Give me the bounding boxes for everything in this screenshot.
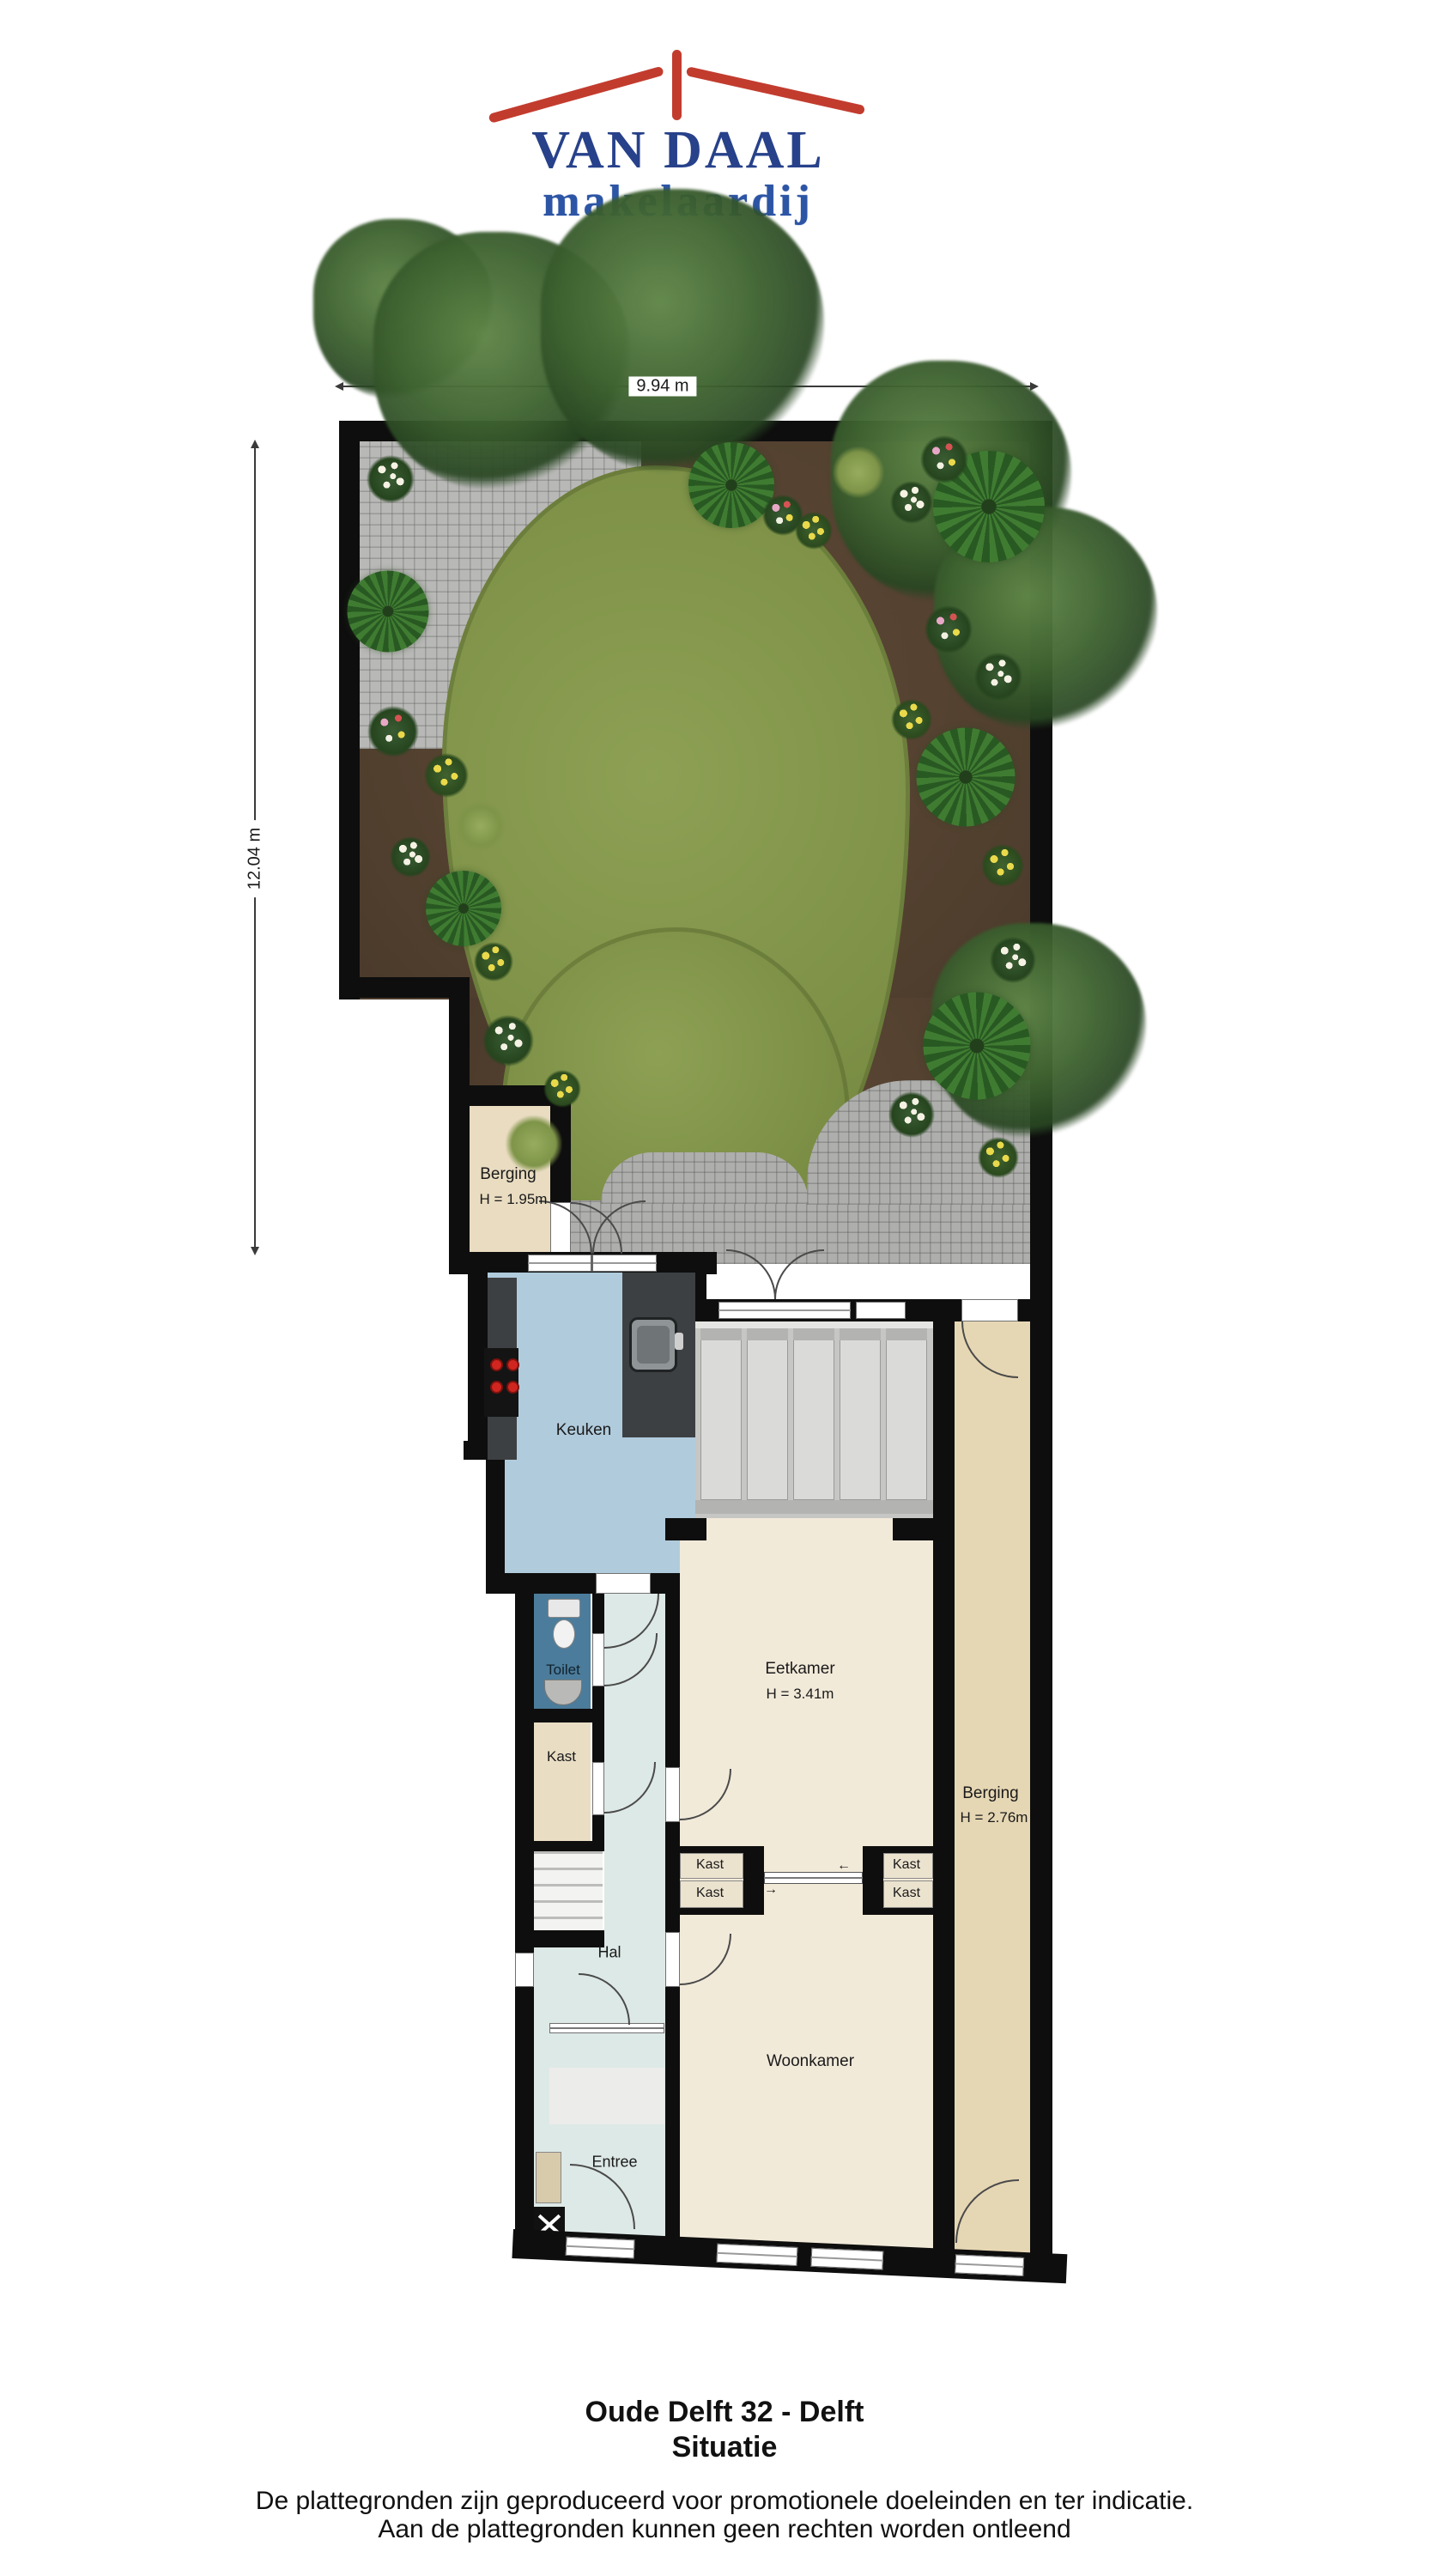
- wall-kast-stairs: [515, 1841, 604, 1851]
- conservatory-window-2: [856, 1302, 906, 1319]
- main-left-wall-c: [665, 1987, 680, 2258]
- conservatory-cap-1: [700, 1328, 742, 1340]
- room-label-eetkamer: Eetkamer: [765, 1660, 834, 1679]
- garden-wall-left-mid: [449, 977, 470, 1264]
- disclaimer-line-1: De plattegronden zijn geproduceerd voor …: [0, 2487, 1449, 2516]
- flower-shrub: [990, 937, 1036, 983]
- stair-tread-4: [534, 1900, 603, 1903]
- kast-band-top-right: [883, 1846, 933, 1853]
- conservatory-cap-3: [793, 1328, 834, 1340]
- berging-right-wall-top-a: [933, 1299, 961, 1321]
- flower-shrub: [888, 1091, 935, 1138]
- conservatory-top-frame: [695, 1321, 933, 1328]
- kast-post-right: [863, 1846, 883, 1915]
- flower-shrub: [474, 942, 513, 981]
- flower-shrub: [367, 455, 415, 503]
- page-title: Oude Delft 32 - Delft: [0, 2396, 1449, 2429]
- tree-bush: [541, 189, 824, 472]
- woonkamer-door: [665, 1932, 680, 1987]
- berging-right-door-top: [961, 1299, 1018, 1321]
- conservatory-cap-2: [747, 1328, 788, 1340]
- room-label-keuken: Keuken: [556, 1421, 611, 1440]
- flower-shrub: [981, 844, 1024, 887]
- stair-tread-5: [534, 1917, 603, 1919]
- flower-shrub: [978, 1137, 1019, 1178]
- room-label-berging-right: Berging: [962, 1784, 1019, 1803]
- conservatory-panel-4: [840, 1328, 881, 1500]
- sliding-door-arrow-right-icon: →: [764, 1882, 778, 1898]
- conservatory-cap-5: [886, 1328, 927, 1340]
- room-label-berging-left: Berging: [480, 1165, 537, 1184]
- kast-band-top-left: [680, 1846, 743, 1853]
- mid-wall-right: [933, 1321, 955, 2266]
- room-label-toilet: Toilet: [546, 1662, 580, 1679]
- service-wall-right-c: [592, 1815, 604, 1850]
- flower-shrub: [974, 653, 1022, 701]
- palm-plant: [426, 871, 501, 946]
- toilet-door: [592, 1633, 604, 1686]
- flower-shrub: [925, 605, 973, 653]
- dim-width-label: 9.94 m: [628, 377, 696, 397]
- hal-inner-door-line: [549, 2027, 664, 2029]
- room-label-kast-1: Kast: [696, 1857, 724, 1873]
- dim-arrow-left: [335, 382, 343, 391]
- toilet-cistern: [548, 1599, 580, 1618]
- hob-burner-3: [490, 1381, 503, 1394]
- hob-burner-2: [506, 1358, 519, 1371]
- berging-right-wall-top-b: [1018, 1299, 1052, 1321]
- room-label-woonkamer: Woonkamer: [767, 2052, 854, 2071]
- flower-shrub: [795, 512, 833, 550]
- grass-tuft: [506, 1115, 562, 1172]
- palm-plant: [688, 442, 774, 528]
- room-label-kast-2: Kast: [696, 1886, 724, 1901]
- service-wall-right-a: [592, 1594, 604, 1633]
- hob-burner-4: [506, 1381, 519, 1394]
- dim-arrow-right: [1030, 382, 1039, 391]
- conservatory-sill: [695, 1500, 933, 1514]
- grass-tuft: [833, 447, 884, 498]
- wall-under-stairs: [515, 1930, 604, 1947]
- hal-floor: [604, 1594, 665, 2238]
- kitchen-window-mullion: [591, 1255, 593, 1272]
- main-left-wall-b: [665, 1822, 680, 1932]
- kast-post-left: [743, 1846, 764, 1915]
- flower-shrub: [367, 706, 419, 757]
- grass-tuft: [457, 802, 505, 850]
- kast-left-door: [592, 1762, 604, 1815]
- conservatory-panel-3: [793, 1328, 834, 1500]
- palm-plant: [348, 571, 429, 653]
- room-height-berging-right: H = 2.76m: [961, 1809, 1028, 1826]
- eetkamer-stub-left: [665, 1518, 706, 1540]
- room-label-kast-left: Kast: [547, 1748, 576, 1765]
- main-left-wall-a: [665, 1594, 680, 1767]
- stair-tread-1: [534, 1851, 603, 1854]
- conservatory-panel-2: [747, 1328, 788, 1500]
- kast-left-floor: [534, 1722, 591, 1841]
- page-subtitle: Situatie: [0, 2431, 1449, 2464]
- hob-burner-1: [490, 1358, 503, 1371]
- flower-shrub: [390, 836, 431, 878]
- kitchen-hal-door: [596, 1573, 651, 1594]
- flower-shrub: [920, 435, 968, 483]
- palm-plant: [924, 993, 1031, 1100]
- flower-shrub: [482, 1015, 534, 1066]
- conservatory-panel-1: [700, 1328, 742, 1500]
- wall-toilet-kast: [515, 1709, 604, 1722]
- house-left-wall: [515, 1594, 534, 2238]
- palm-plant: [917, 728, 1016, 827]
- eetkamer-stub-right: [893, 1518, 933, 1540]
- flower-shrub: [543, 1070, 581, 1108]
- conservatory-window-1-line: [718, 1309, 851, 1311]
- entree-mat: [549, 2068, 664, 2124]
- room-height-eetkamer: H = 3.41m: [767, 1686, 834, 1703]
- flower-shrub: [424, 753, 469, 798]
- dim-height-label: 12.04 m: [246, 820, 265, 897]
- dim-arrow-down: [251, 1247, 259, 1255]
- room-label-hal: Hal: [597, 1944, 621, 1962]
- kitchen-sink-basin: [637, 1326, 670, 1364]
- flower-shrub: [891, 699, 932, 740]
- disclaimer-line-2: Aan de plattegronden kunnen geen rechten…: [0, 2515, 1449, 2544]
- eetkamer-door: [665, 1767, 680, 1822]
- dim-arrow-up: [251, 440, 259, 448]
- conservatory-panel-5: [886, 1328, 927, 1500]
- sliding-door-arrow-left-icon: ←: [837, 1858, 851, 1874]
- room-label-kast-4: Kast: [893, 1886, 920, 1901]
- kast-band-bottom-right: [883, 1908, 933, 1915]
- kast-band-bottom-left: [680, 1908, 743, 1915]
- house-left-window: [515, 1953, 534, 1987]
- garden-wall-left: [339, 421, 360, 999]
- meter-cabinet: [536, 2152, 561, 2203]
- room-label-kast-3: Kast: [893, 1857, 920, 1873]
- room-label-entree: Entree: [591, 2154, 637, 2172]
- service-wall-right-b: [592, 1686, 604, 1762]
- stair-tread-3: [534, 1884, 603, 1886]
- flower-shrub: [890, 481, 933, 524]
- terrace-paving-mid: [601, 1152, 809, 1204]
- kitchen-bottom-wall: [488, 1573, 688, 1594]
- toilet-bowl: [553, 1619, 575, 1649]
- sliding-door-line: [764, 1877, 863, 1879]
- floorplan-canvas: 9.94 m12.04 mBergingH = 1.95mKeukenToile…: [0, 0, 1449, 2318]
- room-height-berging-left: H = 1.95m: [480, 1191, 548, 1208]
- kitchen-sink-tap: [675, 1333, 683, 1350]
- conservatory-cap-4: [840, 1328, 881, 1340]
- stair-tread-2: [534, 1868, 603, 1870]
